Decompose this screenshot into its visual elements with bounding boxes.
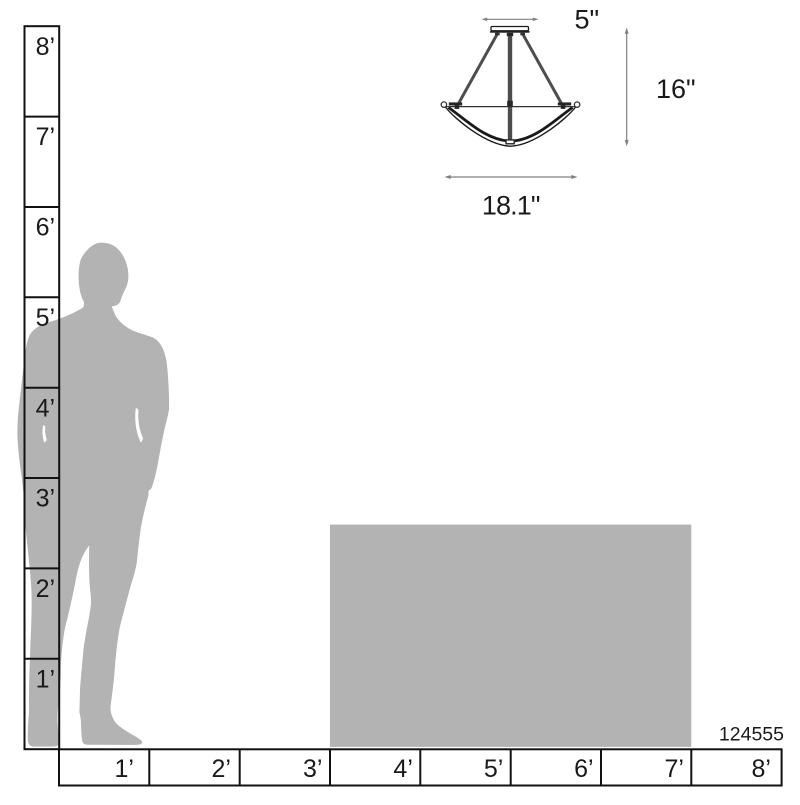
svg-text:1’: 1’ [36,665,55,693]
svg-text:3’: 3’ [36,485,55,513]
svg-text:5’: 5’ [36,304,55,332]
svg-text:16": 16" [656,74,696,104]
svg-text:7’: 7’ [36,123,55,151]
svg-text:1’: 1’ [115,755,134,783]
svg-text:5’: 5’ [484,755,503,783]
svg-text:2’: 2’ [212,755,231,783]
svg-text:6’: 6’ [36,214,55,242]
svg-text:5": 5" [575,5,600,35]
svg-text:124555: 124555 [719,724,784,746]
svg-text:6’: 6’ [574,755,593,783]
svg-text:7’: 7’ [665,755,684,783]
svg-text:3’: 3’ [303,755,322,783]
svg-text:8’: 8’ [752,755,771,783]
svg-text:8’: 8’ [36,33,55,61]
svg-text:4’: 4’ [393,755,412,783]
svg-text:4’: 4’ [36,394,55,422]
svg-text:18.1": 18.1" [482,191,540,221]
svg-text:2’: 2’ [36,575,55,603]
